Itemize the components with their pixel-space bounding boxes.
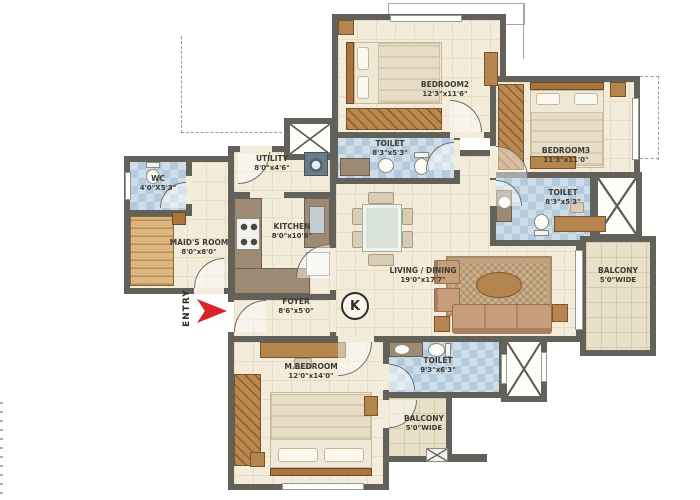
toilet-tank <box>146 162 160 168</box>
desk <box>554 216 606 232</box>
room-name: MAID'S ROOM <box>160 238 238 248</box>
room-dims: 8'3"x5'3" <box>534 198 592 207</box>
room-dims: 8'6"x5'0" <box>266 307 326 316</box>
entry-label: ENTRY <box>182 281 192 327</box>
room-name: BALCONY <box>586 266 650 276</box>
room-name: BALCONY <box>394 414 454 424</box>
room-label-master-toilet: TOILET 9'3"x6'3" <box>404 356 472 375</box>
room-label-balcony-rear: BALCONY 5'0"WIDE <box>394 414 454 433</box>
washing-machine <box>304 152 328 176</box>
side-table <box>364 396 378 416</box>
dining-chair <box>402 208 413 225</box>
shaft-duct-small <box>426 448 448 462</box>
room-dims: 19'0"x17'7" <box>368 276 478 285</box>
window <box>282 483 364 490</box>
x-cross-icon <box>507 342 541 396</box>
washbasin <box>378 158 394 173</box>
room-dims: 8'0"x4'6" <box>240 164 304 173</box>
side-table <box>434 316 450 332</box>
window <box>501 354 507 384</box>
entry-opening <box>228 302 234 332</box>
opening <box>450 132 484 138</box>
room-label-master-bedroom: M.BEDROOM 12'0"x14'0" <box>256 362 366 381</box>
room-dims: 9'3"x6'3" <box>404 366 472 375</box>
toilet-bowl <box>534 214 549 230</box>
stove <box>236 218 260 250</box>
room-name: KITCHEN <box>260 222 324 232</box>
edge-artifact-marks <box>0 398 3 494</box>
room-name: WC <box>128 174 188 184</box>
projection-line <box>523 3 524 59</box>
room-label-bedroom2: BEDROOM2 12'3"x11'6" <box>395 80 495 99</box>
room-name: UTILITY <box>240 154 304 164</box>
dashed-line-right-bottom <box>640 158 659 159</box>
vanity-counter <box>340 158 370 176</box>
room-label-toilet3: TOILET 8'3"x5'3" <box>534 188 592 207</box>
compass-k-letter: K <box>350 299 360 314</box>
entry-arrow-icon <box>197 299 227 323</box>
toilet-tank <box>534 230 549 236</box>
room-name: M.BEDROOM <box>256 362 366 372</box>
room-label-living-dining: LIVING / DINING 19'0"x17'7" <box>368 266 478 285</box>
room-name: BEDROOM2 <box>395 80 495 90</box>
pillow <box>536 93 560 105</box>
room-name: BEDROOM3 <box>516 146 616 156</box>
opening <box>330 300 336 332</box>
pillow <box>324 448 364 462</box>
pillow <box>574 93 598 105</box>
window <box>541 352 547 382</box>
room-label-bedroom3: BEDROOM3 11'3"x11'0" <box>516 146 616 165</box>
compass-k-marker: K <box>341 292 369 320</box>
dashed-line-right-top <box>640 76 659 77</box>
room-label-utility: UTILITY 8'0"x4'6" <box>240 154 304 173</box>
floor-plan: BEDROOM2 12'3"x11'6" TOILET 8'3"x5'3" BE… <box>0 0 700 500</box>
sliding-door <box>575 250 583 330</box>
dining-chair <box>402 231 413 248</box>
room-name: LIVING / DINING <box>368 266 478 276</box>
room-name: TOILET <box>404 356 472 366</box>
bed-headboard <box>346 42 354 104</box>
room-dims: 12'0"x14'0" <box>256 372 366 381</box>
coffee-table <box>476 272 522 298</box>
x-cross-icon <box>427 449 447 461</box>
bed-headboard <box>270 468 372 476</box>
window <box>390 15 462 22</box>
dining-chair <box>368 254 394 266</box>
wardrobe <box>346 108 442 130</box>
sofa <box>452 304 552 334</box>
side-table <box>250 452 265 467</box>
side-table <box>552 304 568 322</box>
room-dims: 8'3"x5'3" <box>352 149 428 158</box>
side-table <box>172 212 186 225</box>
dresser-console <box>260 342 346 358</box>
opening <box>250 192 284 198</box>
room-label-balcony-right: BALCONY 5'0"WIDE <box>586 266 650 285</box>
dining-chair <box>368 192 394 204</box>
bed-headboard <box>530 82 604 90</box>
opening <box>330 248 336 290</box>
room-balcony-right <box>580 236 656 356</box>
toilet-bowl <box>428 343 445 357</box>
opening <box>194 288 224 294</box>
dashed-line-right-vertical <box>658 76 659 160</box>
room-label-maids-room: MAID'S ROOM 8'0"x8'0" <box>160 238 238 257</box>
washbasin <box>394 344 410 355</box>
room-name: FOYER <box>266 297 326 307</box>
room-name: TOILET <box>534 188 592 198</box>
opening <box>454 140 460 170</box>
room-label-foyer: FOYER 8'6"x5'0" <box>266 297 326 316</box>
room-dims: 5'0"WIDE <box>586 276 650 285</box>
side-table <box>338 20 354 35</box>
dashed-line-left-vertical <box>181 36 182 133</box>
window <box>632 98 639 160</box>
room-label-wc: WC 4'0"X5'3" <box>128 174 188 193</box>
room-dims: 12'3"x11'6" <box>395 90 495 99</box>
toilet-tank <box>445 343 451 357</box>
room-label-toilet2: TOILET 8'3"x5'3" <box>352 139 428 158</box>
room-name: TOILET <box>352 139 428 149</box>
room-dims: 4'0"X5'3" <box>128 184 188 193</box>
side-table <box>610 82 626 97</box>
room-dims: 11'3"x11'0" <box>516 156 616 165</box>
room-dims: 5'0"WIDE <box>394 424 454 433</box>
room-dims: 8'0"x10'6" <box>260 232 324 241</box>
x-cross-icon <box>290 124 330 154</box>
dining-table <box>362 204 402 252</box>
dashed-line-left-horizontal <box>181 132 287 133</box>
pillow <box>357 47 369 70</box>
room-dims: 8'0"x8'0" <box>160 248 238 257</box>
blanket <box>271 394 371 440</box>
pillow <box>357 76 369 99</box>
pillow <box>278 448 318 462</box>
room-label-kitchen: KITCHEN 8'0"x10'6" <box>260 222 324 241</box>
wall-stub <box>446 454 487 462</box>
